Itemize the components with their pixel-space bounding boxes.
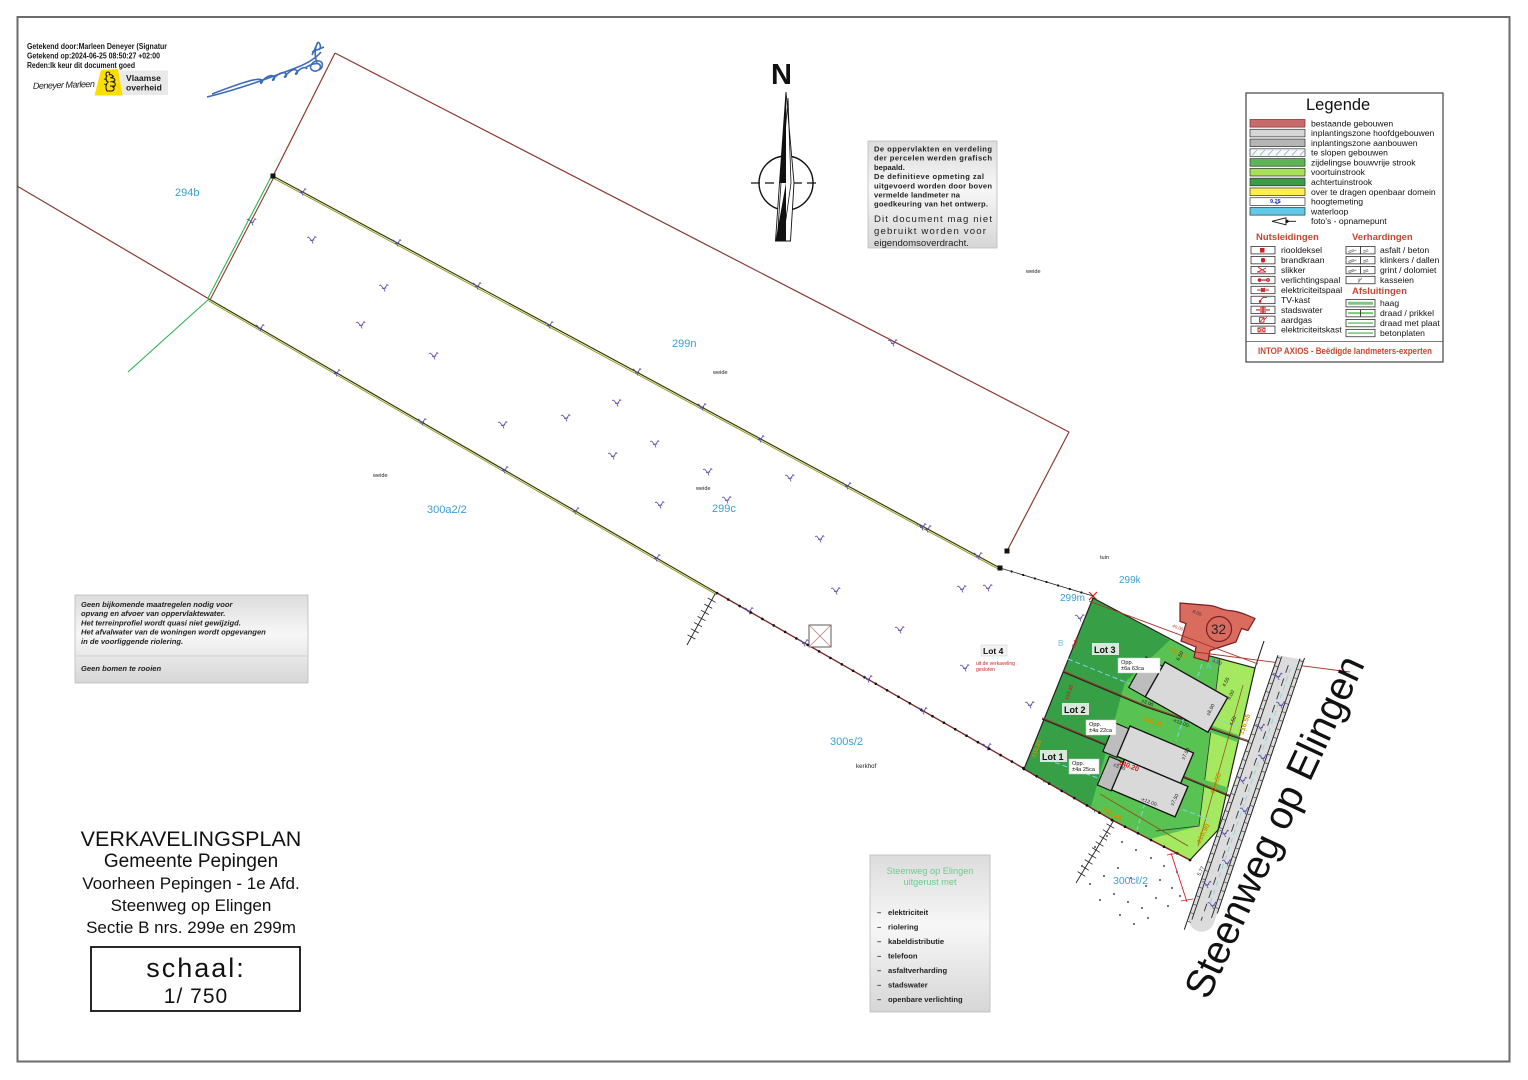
svg-text:over te dragen openbaar domein: over te dragen openbaar domein: [1311, 187, 1436, 197]
svg-text:telefoon: telefoon: [888, 952, 918, 961]
svg-text:inplantingszone hoofdgebouwen: inplantingszone hoofdgebouwen: [1311, 128, 1434, 138]
svg-text:tuin: tuin: [1100, 555, 1109, 561]
svg-text:klinkers / dallen: klinkers / dallen: [1380, 255, 1439, 265]
svg-text:300s/2: 300s/2: [830, 736, 863, 748]
svg-text:De oppervlakten en verdeling: De oppervlakten en verdeling: [874, 145, 992, 154]
svg-text:voortuinstrook: voortuinstrook: [1311, 167, 1366, 177]
svg-text:–: –: [877, 908, 881, 917]
svg-text:gesloten: gesloten: [976, 667, 995, 673]
svg-text:Getekend op:2024-06-25 08:50:2: Getekend op:2024-06-25 08:50:27 +02:00: [27, 52, 161, 61]
svg-text:brandkraan: brandkraan: [1281, 255, 1325, 265]
svg-text:Legende: Legende: [1306, 96, 1370, 114]
svg-text:Nutsleidingen: Nutsleidingen: [1256, 232, 1319, 243]
svg-text:Lot 4: Lot 4: [983, 646, 1004, 656]
svg-text:waterloop: waterloop: [1310, 206, 1348, 216]
svg-text:–: –: [877, 995, 881, 1004]
svg-text:stadswater: stadswater: [888, 981, 928, 990]
svg-text:Sectie B nrs. 299e en 299m: Sectie B nrs. 299e en 299m: [86, 918, 296, 937]
svg-text:der percelen werden grafisch: der percelen werden grafisch: [874, 154, 992, 163]
svg-text:foto's - opnamepunt: foto's - opnamepunt: [1311, 216, 1387, 226]
svg-text:uitgevoerd worden door boven: uitgevoerd worden door boven: [874, 181, 992, 190]
svg-text:Lot 2: Lot 2: [1064, 705, 1086, 715]
svg-text:–: –: [877, 952, 881, 961]
svg-text:299c: 299c: [712, 503, 736, 515]
svg-text:–: –: [877, 923, 881, 932]
svg-text:Steenweg op Elingen: Steenweg op Elingen: [111, 896, 272, 915]
svg-text:weide: weide: [695, 486, 711, 492]
svg-text:aardgas: aardgas: [1281, 315, 1312, 325]
svg-text:vermelde landmeter na: vermelde landmeter na: [874, 191, 961, 200]
svg-text:elektriciteitspaal: elektriciteitspaal: [1281, 285, 1342, 295]
svg-text:De definitieve opmeting zal: De definitieve opmeting zal: [874, 172, 984, 181]
svg-text:299n: 299n: [672, 338, 696, 350]
svg-text:draad met plaat: draad met plaat: [1380, 318, 1440, 328]
svg-text:TV-kast: TV-kast: [1281, 295, 1311, 305]
svg-text:294b: 294b: [175, 187, 199, 199]
svg-text:haag: haag: [1380, 298, 1399, 308]
svg-text:grint / dolomiet: grint / dolomiet: [1380, 265, 1437, 275]
svg-text:Geen bijkomende maatregelen no: Geen bijkomende maatregelen nodig voor: [81, 600, 234, 609]
svg-text:hoogtemeting: hoogtemeting: [1311, 197, 1363, 207]
svg-text:–: –: [877, 981, 881, 990]
svg-text:bestaande gebouwen: bestaande gebouwen: [1311, 118, 1393, 128]
svg-text:INTOP AXIOS - Beëdigde landmet: INTOP AXIOS - Beëdigde landmeters-expert…: [1258, 346, 1432, 357]
svg-text:Het terreinprofiel wordt quasi: Het terreinprofiel wordt quasi niet gewi…: [81, 618, 241, 627]
svg-text:32: 32: [1211, 622, 1226, 637]
svg-text:weide: weide: [712, 370, 728, 376]
svg-text:Getekend door:Marleen Deneyer: Getekend door:Marleen Deneyer (Signatur: [27, 42, 167, 51]
svg-text:overheid: overheid: [126, 83, 162, 93]
svg-text:gebruikt worden voor: gebruikt worden voor: [874, 226, 987, 237]
svg-text:Gemeente Pepingen: Gemeente Pepingen: [104, 851, 278, 872]
svg-text:openbare verlichting: openbare verlichting: [888, 995, 963, 1004]
svg-text:–: –: [877, 966, 881, 975]
svg-text:Het afvalwater van de woningen: Het afvalwater van de woningen wordt opg…: [81, 628, 266, 637]
svg-text:bepaald.: bepaald.: [874, 163, 905, 172]
svg-text:verlichtingspaal: verlichtingspaal: [1281, 275, 1340, 285]
svg-text:weide: weide: [372, 473, 388, 479]
svg-text:betonplaten: betonplaten: [1380, 328, 1425, 338]
svg-text:299k: 299k: [1119, 575, 1142, 586]
svg-text:elektriciteit: elektriciteit: [888, 908, 929, 917]
svg-text:Geen bomen te rooien: Geen bomen te rooien: [81, 664, 162, 673]
svg-text:N: N: [771, 59, 792, 91]
svg-text:Lot 1: Lot 1: [1042, 752, 1064, 762]
svg-text:goedkeuring van het ontwerp.: goedkeuring van het ontwerp.: [874, 200, 988, 209]
svg-text:–: –: [877, 937, 881, 946]
svg-text:schaal:: schaal:: [146, 953, 246, 983]
svg-text:riooldeksel: riooldeksel: [1281, 245, 1322, 255]
svg-text:299m: 299m: [1060, 593, 1085, 604]
svg-text:300cℓ/2: 300cℓ/2: [1113, 875, 1148, 887]
svg-text:Lot 3: Lot 3: [1094, 645, 1116, 655]
svg-text:asfalt / beton: asfalt / beton: [1380, 245, 1429, 255]
svg-text:Steenweg op Elingen: Steenweg op Elingen: [887, 866, 974, 876]
svg-text:uitgerust met: uitgerust met: [903, 877, 957, 887]
svg-text:te slopen gebouwen: te slopen gebouwen: [1311, 148, 1388, 158]
svg-text:kerkhof: kerkhof: [856, 763, 877, 770]
svg-text:asfaltverharding: asfaltverharding: [888, 966, 947, 975]
svg-text:40.00: 40.00: [1172, 623, 1185, 632]
svg-text:VERKAVELINGSPLAN: VERKAVELINGSPLAN: [81, 827, 302, 851]
svg-text:eigendomsoverdracht.: eigendomsoverdracht.: [874, 238, 969, 249]
svg-text:±4a 22ca: ±4a 22ca: [1089, 728, 1113, 734]
svg-text:elektriciteitskast: elektriciteitskast: [1281, 325, 1342, 335]
svg-text:kabeldistributie: kabeldistributie: [888, 937, 944, 946]
svg-text:300a2/2: 300a2/2: [427, 504, 467, 516]
svg-text:in de voorliggende riolering.: in de voorliggende riolering.: [81, 637, 183, 646]
svg-text:Deneyer Marleen: Deneyer Marleen: [33, 79, 95, 91]
svg-text:±4a 25ca: ±4a 25ca: [1072, 767, 1096, 773]
svg-text:opvang en afvoer van oppervlak: opvang en afvoer van oppervlaktewater.: [81, 609, 225, 618]
svg-text:riolering: riolering: [888, 923, 919, 932]
svg-text:Voorheen Pepingen - 1e Afd.: Voorheen Pepingen - 1e Afd.: [82, 874, 299, 893]
svg-text:achtertuinstrook: achtertuinstrook: [1311, 177, 1373, 187]
svg-text:slikker: slikker: [1281, 265, 1305, 275]
svg-text:Verhardingen: Verhardingen: [1352, 232, 1413, 243]
svg-text:Vlaamse: Vlaamse: [126, 73, 161, 83]
svg-text:Afsluitingen: Afsluitingen: [1352, 286, 1407, 297]
svg-text:±6a 63ca: ±6a 63ca: [1121, 666, 1145, 672]
svg-text:draad / prikkel: draad / prikkel: [1380, 308, 1434, 318]
svg-text:B: B: [1058, 639, 1063, 648]
svg-text:Reden:Ik keur dit document goe: Reden:Ik keur dit document goed: [27, 61, 135, 70]
svg-text:stadswater: stadswater: [1281, 305, 1323, 315]
svg-text:inplantingszone aanbouwen: inplantingszone aanbouwen: [1311, 138, 1418, 148]
svg-text:weide: weide: [1025, 269, 1041, 275]
svg-text:zijdelingse bouwvrije strook: zijdelingse bouwvrije strook: [1311, 157, 1416, 167]
svg-text:1/ 750: 1/ 750: [164, 985, 228, 1008]
svg-text:kasseien: kasseien: [1380, 275, 1414, 285]
